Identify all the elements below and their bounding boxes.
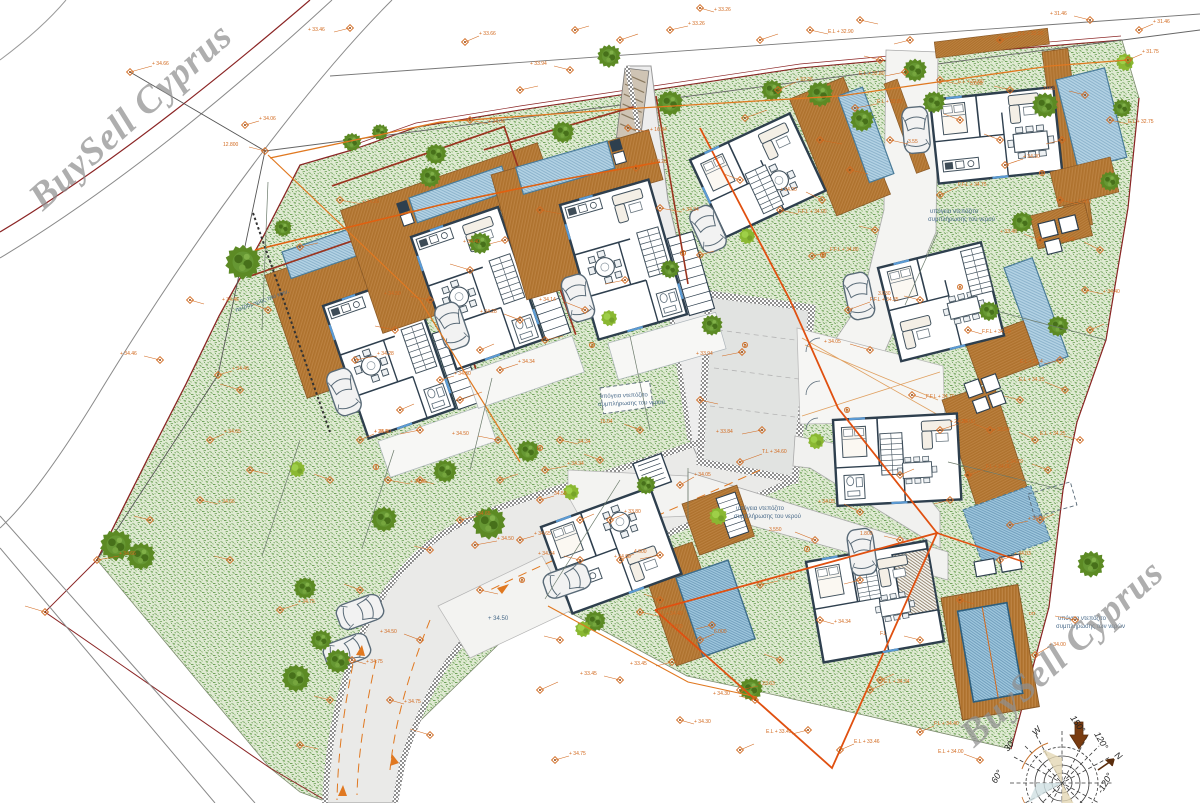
svg-text:T.L + 34.60: T.L + 34.60 xyxy=(762,449,787,455)
svg-text:+ 34.34: + 34.34 xyxy=(567,461,584,467)
svg-text:+ 34.28: + 34.28 xyxy=(480,309,497,315)
svg-text:+ 34.03: + 34.03 xyxy=(1014,551,1031,557)
svg-text:+ 34.30: + 34.30 xyxy=(694,719,711,725)
svg-text:E.L + 33.4: E.L + 33.4 xyxy=(1020,359,1043,365)
svg-text:+ 34.65: + 34.65 xyxy=(534,531,551,537)
svg-text:+ 34.46: + 34.46 xyxy=(222,297,239,303)
svg-text:E.L + 32.90: E.L + 32.90 xyxy=(828,29,854,35)
svg-text:+ 34.06: + 34.06 xyxy=(488,119,505,125)
svg-text:+ 24.25: + 24.25 xyxy=(950,419,967,425)
svg-text:+ 34.50: + 34.50 xyxy=(380,629,397,635)
svg-text:15.04: 15.04 xyxy=(600,419,613,425)
svg-text:+ 33.24: + 33.24 xyxy=(993,427,1010,433)
svg-text:6.000: 6.000 xyxy=(714,629,727,635)
svg-text:+ 33.45: + 33.45 xyxy=(580,671,597,677)
svg-text:υπόγεια ντεπόζιτο: υπόγεια ντεπόζιτο xyxy=(736,505,785,512)
svg-text:+ 33.80: + 33.80 xyxy=(624,509,641,515)
svg-text:+ 34.30: + 34.30 xyxy=(1023,154,1040,160)
svg-text:3.550: 3.550 xyxy=(769,527,782,533)
svg-text:6.000: 6.000 xyxy=(670,624,683,630)
svg-text:+ 34.50: + 34.50 xyxy=(454,371,471,377)
svg-text:F.F.L + 34.00: F.F.L + 34.00 xyxy=(798,209,827,215)
svg-text:+ 31.46: + 31.46 xyxy=(1153,19,1170,25)
svg-text:34.65: 34.65 xyxy=(478,511,491,517)
svg-text:+ 33.94: + 33.94 xyxy=(696,351,713,357)
svg-text:+ 34.50: + 34.50 xyxy=(497,536,514,542)
svg-text:+ 16.04: + 16.04 xyxy=(650,127,667,133)
svg-text:F.L: F.L xyxy=(880,631,887,637)
svg-text:+ 34.26: + 34.26 xyxy=(362,199,379,205)
svg-text:F.F.L + 34.80: F.F.L + 34.80 xyxy=(830,247,859,253)
svg-text:+ 34.05: + 34.05 xyxy=(824,339,841,345)
svg-text:+ 33.26: + 33.26 xyxy=(714,7,731,13)
svg-text:E.L + 32.80: E.L + 32.80 xyxy=(958,79,984,85)
svg-text:4.9(6): 4.9(6) xyxy=(1078,199,1091,205)
svg-text:+ 31.75: + 31.75 xyxy=(1142,49,1159,55)
svg-text:F.F.L + 34.75: F.F.L + 34.75 xyxy=(958,182,987,188)
svg-text:+ 31.46: + 31.46 xyxy=(1050,11,1067,17)
svg-text:1.800: 1.800 xyxy=(860,531,873,537)
svg-text:3.030: 3.030 xyxy=(878,291,891,297)
svg-text:+ 34.50: + 34.50 xyxy=(488,616,509,622)
svg-text:+ 32.26: + 32.26 xyxy=(796,77,813,83)
svg-text:+ 34.75: + 34.75 xyxy=(298,599,315,605)
svg-text:E.L + 34.00: E.L + 34.00 xyxy=(938,749,964,755)
svg-text:F.L + 34.00: F.L + 34.00 xyxy=(986,464,1011,470)
svg-text:+ 34.40: + 34.40 xyxy=(463,239,480,245)
svg-text:F.L + 34.40: F.L + 34.40 xyxy=(658,611,683,617)
svg-text:+ 34.40: + 34.40 xyxy=(1103,289,1120,295)
svg-text:+ 34.30: + 34.30 xyxy=(713,691,730,697)
svg-text:+ 23.63: + 23.63 xyxy=(758,681,775,687)
svg-text:E.L + 34.34: E.L + 34.34 xyxy=(884,679,910,685)
svg-text:+ 33.45: + 33.45 xyxy=(630,661,647,667)
svg-text:+ 34.66: + 34.66 xyxy=(119,551,136,557)
svg-text:E.L + 33.45: E.L + 33.45 xyxy=(766,729,792,735)
svg-text:υπόγεια ντεπόζιτο: υπόγεια ντεπόζιτο xyxy=(930,208,979,215)
svg-text:+ 33.66: + 33.66 xyxy=(479,31,496,37)
svg-text:F.F.L + 34.70: F.F.L + 34.70 xyxy=(982,329,1011,335)
svg-text:+ 34.65: + 34.65 xyxy=(224,429,241,435)
svg-text:+ 34.00: + 34.00 xyxy=(780,187,797,193)
svg-text:34.50: 34.50 xyxy=(554,491,567,497)
svg-text:E.L + 33.46: E.L + 33.46 xyxy=(854,739,880,745)
svg-text:+ 34.28: + 34.28 xyxy=(650,159,667,165)
svg-text:34.34: 34.34 xyxy=(578,439,591,445)
svg-text:+ 34.34: + 34.34 xyxy=(834,619,851,625)
svg-text:+ 34.24: + 34.24 xyxy=(538,551,555,557)
svg-text:+ 34.46: + 34.46 xyxy=(232,366,249,372)
svg-text:E.L + 32.75: E.L + 32.75 xyxy=(1128,119,1154,125)
svg-text:+ 34.28: + 34.28 xyxy=(377,351,394,357)
svg-text:E.L + 32.80: E.L + 32.80 xyxy=(877,99,903,105)
svg-text:+ 34.14: + 34.14 xyxy=(539,297,556,303)
svg-text:F.F.L + 34.70: F.F.L + 34.70 xyxy=(926,394,955,400)
svg-text:+ 34.66: + 34.66 xyxy=(218,499,235,505)
svg-text:+ 34.34: + 34.34 xyxy=(518,359,535,365)
svg-text:συμπλήρωσης του νερού: συμπλήρωσης του νερού xyxy=(734,513,801,520)
svg-text:+ 34.34: + 34.34 xyxy=(682,207,699,213)
svg-text:+ 33.26: + 33.26 xyxy=(688,21,705,27)
svg-text:+ 34.46: + 34.46 xyxy=(120,351,137,357)
svg-text:12.800: 12.800 xyxy=(223,142,239,148)
svg-text:+ 25.4: + 25.4 xyxy=(374,429,388,435)
svg-text:+ 34.75: + 34.75 xyxy=(569,751,586,757)
svg-text:4.600: 4.600 xyxy=(634,549,647,555)
svg-text:F.F.L + 34.35: F.F.L + 34.35 xyxy=(870,297,899,303)
svg-text:+ 33.46: + 33.46 xyxy=(308,27,325,33)
svg-text:E.L + 32.80: E.L + 32.80 xyxy=(859,71,885,77)
svg-text:3.000: 3.000 xyxy=(1043,86,1056,92)
svg-text:+ 34.50: + 34.50 xyxy=(452,431,469,437)
svg-text:+ 33.48: + 33.48 xyxy=(1000,229,1017,235)
svg-text:E.L + 32.90: E.L + 32.90 xyxy=(1018,31,1044,37)
svg-text:3.55: 3.55 xyxy=(908,139,918,145)
svg-text:+ 34.34: + 34.34 xyxy=(778,576,795,582)
svg-text:+ 34.05: + 34.05 xyxy=(694,472,711,478)
svg-text:+ 33.48: + 33.48 xyxy=(1058,237,1075,243)
svg-text:συμπλήρωσης του νερού: συμπλήρωσης του νερού xyxy=(928,216,995,223)
svg-text:+ 34.75: + 34.75 xyxy=(404,699,421,705)
svg-text:E.L + 34.25: E.L + 34.25 xyxy=(1040,431,1066,437)
svg-text:E.L + 34.25: E.L + 34.25 xyxy=(1019,377,1045,383)
svg-text:+ 34.75: + 34.75 xyxy=(366,659,383,665)
svg-text:+ 33.94: + 33.94 xyxy=(530,61,547,67)
svg-text:+ 34.06: + 34.06 xyxy=(259,116,276,122)
svg-text:+ 33.84: + 33.84 xyxy=(716,429,733,435)
svg-text:+ 34.05: + 34.05 xyxy=(818,499,835,505)
svg-text:+ 34.50: + 34.50 xyxy=(384,291,401,297)
svg-text:υπ: υπ xyxy=(1029,611,1036,617)
